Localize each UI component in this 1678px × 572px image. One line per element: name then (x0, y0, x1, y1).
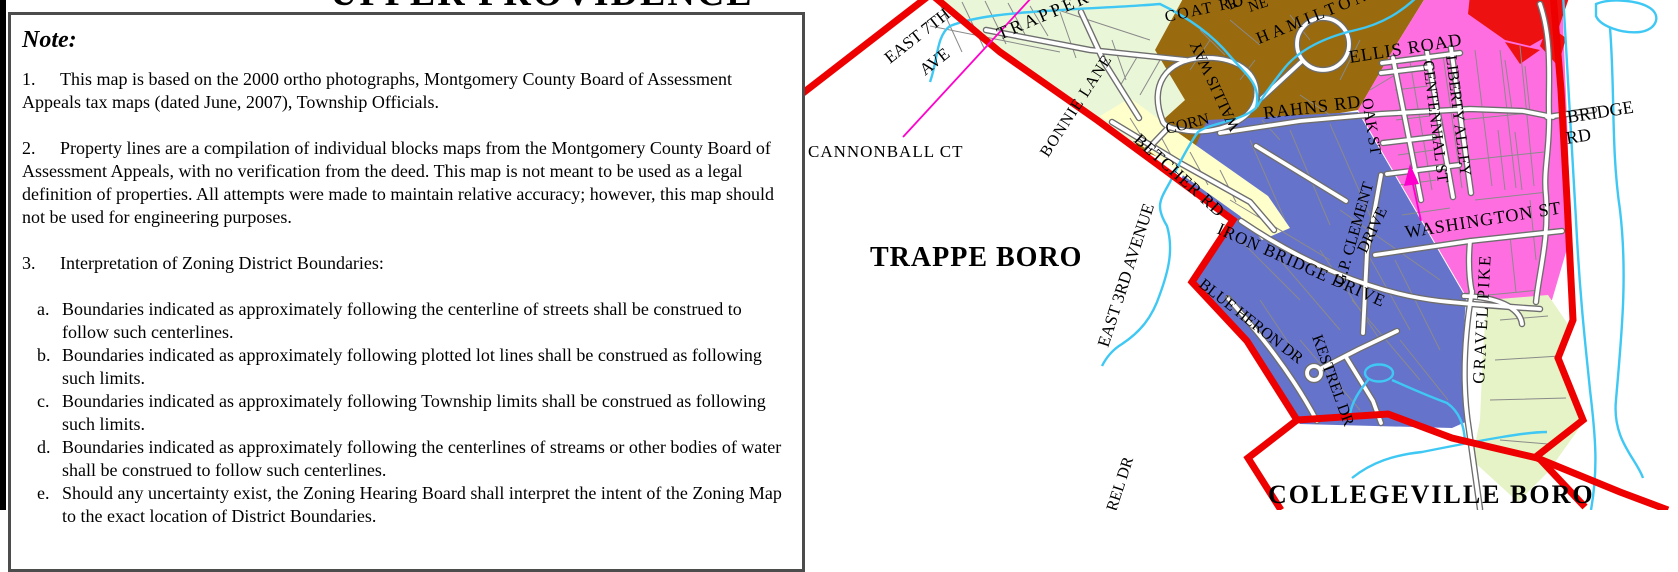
creek-east-line (1610, 28, 1643, 478)
pond-northeast (1596, 1, 1656, 33)
note-subitem-b: b.Boundaries indicated as approximately … (22, 344, 786, 390)
map-title-clipped: UPPER PROVIDENCE TWP (330, 0, 750, 11)
note-subitem-e: e.Should any uncertainty exist, the Zoni… (22, 482, 786, 528)
note-subitem-d-letter: d. (37, 436, 51, 459)
note-item-1: 1.This map is based on the 2000 ortho ph… (22, 68, 786, 114)
note-subitem-a-text: Boundaries indicated as approximately fo… (62, 299, 742, 342)
note-heading: Note: (22, 29, 786, 52)
note-subitem-c: c.Boundaries indicated as approximately … (22, 390, 786, 436)
note-box: Note: 1.This map is based on the 2000 or… (8, 12, 805, 572)
note-subitem-b-text: Boundaries indicated as approximately fo… (62, 345, 762, 388)
note-sublist: a.Boundaries indicated as approximately … (22, 298, 786, 528)
map-title-text: UPPER PROVIDENCE TWP (330, 0, 750, 11)
note-subitem-d-text: Boundaries indicated as approximately fo… (62, 437, 781, 480)
note-subitem-a-letter: a. (37, 298, 50, 321)
note-subitem-c-letter: c. (37, 390, 50, 413)
street-label-cannonball-ct: CANNONBALL CT (808, 142, 963, 161)
street-label-east-7th-line2: AVE (916, 44, 954, 79)
note-item-3: 3.Interpretation of Zoning District Boun… (22, 252, 786, 275)
note-item-1-text: This map is based on the 2000 ortho phot… (22, 69, 732, 112)
street-label-kestrel-fragment: REL DR (1104, 455, 1138, 510)
boro-label-collegeville: COLLEGEVILLE BORO (1268, 480, 1595, 509)
note-subitem-d: d.Boundaries indicated as approximately … (22, 436, 786, 482)
note-item-2: 2.Property lines are a compilation of in… (22, 137, 786, 229)
note-subitem-e-text: Should any uncertainty exist, the Zoning… (62, 483, 782, 526)
note-item-2-text: Property lines are a compilation of indi… (22, 138, 774, 227)
note-item-2-number: 2. (22, 137, 60, 160)
note-subitem-a: a.Boundaries indicated as approximately … (22, 298, 786, 344)
note-item-3-text: Interpretation of Zoning District Bounda… (60, 253, 384, 273)
note-subitem-e-letter: e. (37, 482, 50, 505)
note-subitem-b-letter: b. (37, 344, 51, 367)
street-label-east-3rd-avenue: EAST 3RD AVENUE (1094, 201, 1158, 349)
boro-label-trappe: TRAPPE BORO (870, 242, 1082, 273)
street-label-bridge-rd-line2: RD (1564, 124, 1592, 148)
street-label-bridge-rd-line1: BRIDGE (1565, 97, 1634, 127)
note-item-3-number: 3. (22, 252, 60, 275)
map-frame-left-edge (0, 0, 6, 510)
note-subitem-c-text: Boundaries indicated as approximately fo… (62, 391, 766, 434)
note-item-1-number: 1. (22, 68, 60, 91)
